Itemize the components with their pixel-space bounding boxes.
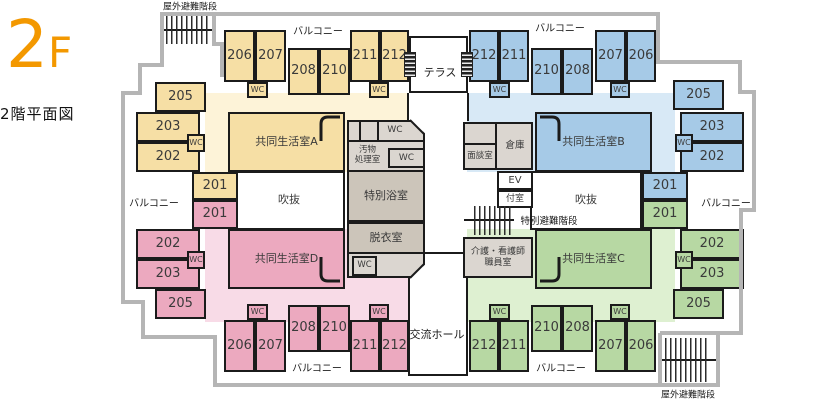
floor-title: 2F bbox=[6, 12, 72, 78]
floor-plan-2f: 2F 2階平面図 [ひまわり]エリア [つばき]エリア [すみれ]エリア [たん… bbox=[0, 0, 830, 402]
room-211-tanpopo: 211 bbox=[499, 320, 529, 372]
wc-tsubaki-1: WC bbox=[489, 82, 510, 98]
room-205-himawari: 205 bbox=[155, 82, 206, 112]
elevator: EV bbox=[497, 171, 533, 190]
terrace-right-wall bbox=[467, 93, 469, 121]
room-201-sumire: 201 bbox=[192, 200, 238, 229]
wc-sumire-2: WC bbox=[369, 304, 389, 320]
room-212-tanpopo: 212 bbox=[469, 320, 499, 372]
special-escape-stairs-label: 特別避難階段 bbox=[520, 213, 577, 227]
wc-sumire-3: WC bbox=[187, 251, 205, 269]
room-207-tanpopo: 207 bbox=[595, 320, 626, 372]
care-staff-room: 介護・看護師 職員室 bbox=[463, 237, 533, 278]
special-bathroom: 特別浴室 bbox=[347, 170, 425, 222]
interview-room: 面談室 bbox=[464, 145, 496, 169]
room-211-sumire: 211 bbox=[350, 320, 380, 372]
room-208-himawari: 208 bbox=[288, 48, 319, 95]
living-room-b: 共同生活室B bbox=[535, 112, 652, 172]
room-210-tsubaki: 210 bbox=[531, 48, 562, 95]
room-205-tsubaki: 205 bbox=[673, 80, 724, 110]
room-210-sumire: 210 bbox=[319, 305, 350, 352]
room-207-sumire: 207 bbox=[255, 320, 286, 372]
terrace-left-wall bbox=[407, 93, 409, 121]
room-206-tsubaki: 206 bbox=[626, 30, 656, 82]
room-206-sumire: 206 bbox=[224, 320, 255, 372]
wc-sanitary-mid: WC bbox=[388, 148, 425, 168]
outdoor-stairs-top-label: 屋外避難階段 bbox=[163, 0, 217, 13]
terrace-label: テラス bbox=[424, 64, 457, 80]
room-208-tsubaki: 208 bbox=[562, 48, 593, 95]
balcony-label-top-right: バルコニー bbox=[535, 20, 585, 35]
balcony-label-bottom-left: バルコニー bbox=[292, 360, 342, 375]
sanitary-divider-1 bbox=[359, 120, 361, 142]
wc-tanpopo-2: WC bbox=[610, 304, 630, 320]
room-201-tsubaki: 201 bbox=[642, 172, 688, 200]
floor-number: 2 bbox=[6, 6, 48, 83]
outdoor-stairs-bottom-icon bbox=[665, 338, 710, 382]
wc-himawari-1: WC bbox=[247, 82, 268, 98]
wc-tanpopo-3: WC bbox=[675, 251, 693, 269]
floor-caption: 2階平面図 bbox=[0, 103, 75, 124]
terrace-step-left-icon bbox=[404, 52, 416, 77]
living-room-d: 共同生活室D bbox=[228, 229, 345, 289]
wc-tsubaki-2: WC bbox=[610, 82, 630, 98]
wc-tsubaki-3: WC bbox=[675, 134, 693, 152]
room-210-tanpopo: 210 bbox=[531, 305, 562, 352]
room-212-tsubaki: 212 bbox=[469, 30, 499, 82]
wc-sanitary-bottom: WC bbox=[352, 256, 377, 276]
exchange-hall-label: 交流ホール bbox=[410, 326, 465, 342]
room-205-tanpopo: 205 bbox=[673, 289, 724, 319]
undressing-room: 脱衣室 bbox=[347, 222, 425, 254]
outdoor-stairs-top-icon bbox=[166, 16, 208, 44]
balcony-label-bottom-right: バルコニー bbox=[536, 360, 586, 375]
storage-room: 倉庫 bbox=[497, 122, 533, 170]
soiled-utility-room: 汚物 処理室 bbox=[347, 142, 388, 170]
living-room-a: 共同生活室A bbox=[228, 112, 345, 172]
terrace-step-right-icon bbox=[461, 52, 473, 77]
wc-tanpopo-1: WC bbox=[489, 304, 510, 320]
room-211-himawari: 211 bbox=[350, 30, 380, 82]
room-201-himawari: 201 bbox=[192, 172, 238, 200]
room-210-himawari: 210 bbox=[319, 48, 350, 95]
wc-sumire-1: WC bbox=[247, 304, 268, 320]
room-201-tanpopo: 201 bbox=[642, 200, 688, 229]
balcony-label-right: バルコニー bbox=[701, 195, 751, 210]
room-211-tsubaki: 211 bbox=[499, 30, 529, 82]
room-207-tsubaki: 207 bbox=[595, 30, 626, 82]
room-207-himawari: 207 bbox=[255, 30, 286, 82]
special-escape-stairs-icon bbox=[474, 206, 512, 235]
room-205-sumire: 205 bbox=[155, 289, 206, 319]
room-212-sumire: 212 bbox=[380, 320, 409, 372]
atrium-left: 吹抜 bbox=[233, 171, 345, 230]
balcony-label-top-left: バルコニー bbox=[293, 23, 343, 38]
room-206-himawari: 206 bbox=[224, 30, 255, 82]
floor-letter: F bbox=[48, 28, 72, 77]
room-206-tanpopo: 206 bbox=[626, 320, 656, 372]
wc-himawari-2: WC bbox=[369, 82, 389, 98]
room-208-sumire: 208 bbox=[288, 305, 319, 352]
outdoor-stairs-bottom-label: 屋外避難階段 bbox=[661, 388, 715, 401]
wc-sanitary-top: WC bbox=[379, 120, 411, 141]
living-room-c: 共同生活室C bbox=[535, 229, 652, 289]
wc-himawari-3: WC bbox=[187, 134, 205, 152]
room-208-tanpopo: 208 bbox=[562, 305, 593, 352]
balcony-label-left: バルコニー bbox=[129, 195, 179, 210]
